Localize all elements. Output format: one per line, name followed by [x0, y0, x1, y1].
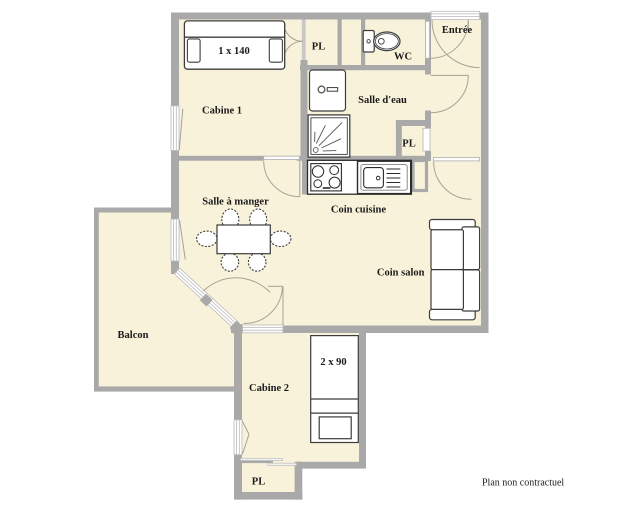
svg-text:PL: PL — [312, 42, 325, 53]
svg-text:Cabine 2: Cabine 2 — [249, 383, 289, 394]
svg-text:Coin salon: Coin salon — [377, 268, 425, 279]
svg-text:2 x 90: 2 x 90 — [320, 357, 346, 368]
svg-text:Salle d'eau: Salle d'eau — [358, 95, 407, 106]
svg-text:Balcon: Balcon — [118, 330, 149, 341]
svg-text:PL: PL — [252, 477, 265, 488]
svg-text:Plan non contractuel: Plan non contractuel — [482, 478, 564, 489]
svg-text:Entrée: Entrée — [442, 25, 473, 36]
svg-text:1 x 140: 1 x 140 — [218, 46, 250, 57]
svg-text:PL: PL — [402, 139, 415, 150]
svg-text:Coin cuisine: Coin cuisine — [331, 205, 386, 216]
svg-text:Cabine 1: Cabine 1 — [202, 106, 242, 117]
svg-text:Salle à manger: Salle à manger — [202, 197, 269, 208]
svg-text:WC: WC — [394, 52, 412, 63]
